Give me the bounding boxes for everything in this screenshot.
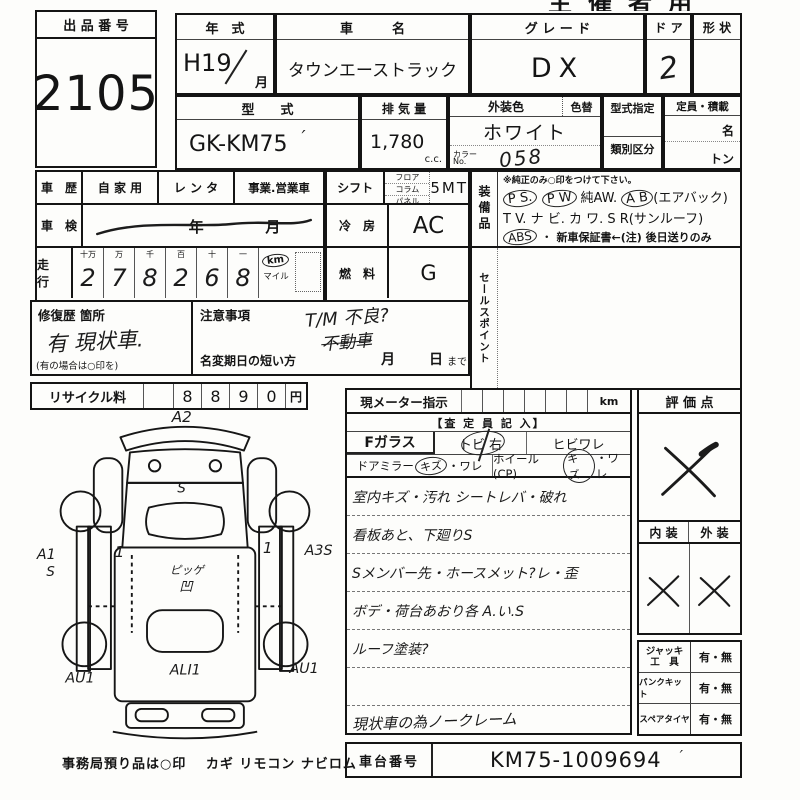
car-name-value: タウンエーストラック: [277, 40, 468, 96]
displacement-label: 排 気 量: [362, 97, 446, 120]
mirror-kizu-circle: キズ: [414, 455, 448, 476]
meter-cell: [567, 390, 588, 412]
exterior-color-box: 外装色 色替 ホワイト カラー No. 058: [448, 95, 602, 170]
mileage-d5: 6: [197, 261, 227, 294]
evaluation-x-mark: [654, 423, 726, 511]
caution-day-unit: 日: [429, 349, 443, 369]
sales-point-label: セールスポイント: [472, 248, 498, 388]
model-code-value: GK-KM75: [189, 132, 288, 157]
diagram-note-hood-s: S: [177, 481, 186, 496]
history-rental: レ ン タ: [159, 172, 235, 203]
jack-tools-label: ジャッキ 工 具: [639, 642, 691, 672]
left-tail-light: [136, 709, 168, 721]
car-top-view-diagram: A2 S 1 1 A1 S A3S ピッゲ 凹 AU1 ALI1 AU1: [25, 405, 345, 745]
displacement-value: 1,780: [370, 131, 424, 153]
repair-label: 修復歴 箇所: [32, 302, 191, 324]
top-cut-text-clip: 主催者用: [548, 0, 758, 11]
chassis-number-value: KM75-1009694: [490, 748, 662, 772]
top-cut-text: 主催者用: [548, 0, 708, 11]
front-bumper-outline: [120, 427, 249, 451]
evaluation-exterior-label: 外 装: [689, 522, 740, 542]
grade-box: グ レ ー ド DX: [470, 13, 645, 95]
year-month-suffix: 月: [255, 72, 268, 91]
repair-box: 修復歴 箇所 有 現状車. (有の場合は○印を): [30, 300, 193, 376]
mileage-mile-unit: マイル: [259, 270, 293, 282]
diagram-note-door-left: 1: [115, 543, 125, 561]
equipment-abs: ABS: [502, 227, 537, 246]
shift-value: 5MT: [430, 172, 468, 203]
tools-box: ジャッキ 工 具 有・無 パンクキット 有・無 スペアタイヤ 有・無: [637, 640, 742, 736]
equipment-label: 装備品: [472, 172, 498, 246]
history-label: 車 歴: [37, 172, 83, 203]
puncture-kit-value: 有・無: [691, 673, 740, 703]
evaluation-score-area: [639, 414, 740, 522]
caution-handwriting-2: 不動車: [320, 326, 373, 355]
shift-floor: フロア: [385, 172, 429, 184]
auction-number-value: 2105: [37, 39, 155, 149]
rear-panel: [126, 703, 244, 728]
capacity-label: 定員・積載: [665, 97, 740, 116]
sales-point-box: セールスポイント: [470, 246, 742, 390]
assessor-note-4: ボデ・荷台あおり各 A.い.S: [347, 592, 630, 630]
left-rear-wheel: [62, 622, 106, 666]
car-name-box: 車 名 タウンエーストラック: [275, 13, 470, 95]
cab-rear-window: [146, 503, 224, 539]
meter-label: 現メーター指示: [347, 390, 461, 412]
diagram-note-bed-1: ピッゲ: [170, 563, 206, 577]
rear-bumper: [113, 732, 257, 739]
door-value: 2: [643, 37, 693, 98]
mileage-h4: 百: [166, 248, 196, 261]
mileage-d1: 2: [73, 261, 103, 294]
puncture-kit-label: パンクキット: [639, 673, 691, 703]
equipment-aw: 純AW.: [580, 191, 617, 206]
exterior-color-value: ホワイト: [450, 117, 600, 145]
assessor-note-3: Sメンバー先・ホースメット?レ・歪: [347, 554, 630, 592]
fuel-label: 燃 料: [327, 248, 389, 298]
meter-cell: [461, 390, 483, 412]
equipment-kawa: カ ワ.: [569, 212, 603, 227]
interior-x-mark: [643, 559, 685, 619]
meter-cell: [504, 390, 525, 412]
equipment-dot: ・: [541, 230, 553, 244]
bed-rear-window: [147, 610, 223, 652]
drivetrain-table: シフト フロア コラム パネル 5MT 冷 房 AC 燃 料 G: [325, 170, 470, 302]
cooling-label: 冷 房: [327, 205, 389, 246]
type-designation-label: 型式指定: [604, 97, 661, 137]
equipment-tv: T V.: [503, 212, 526, 227]
door-label: ド ア: [647, 15, 690, 40]
diagram-note-door-right: 1: [263, 539, 273, 557]
auction-number-box: 出 品 番 号 2105: [35, 10, 157, 168]
year-box: 年 式 H19 月: [175, 13, 275, 95]
mileage-d2: 7: [104, 261, 134, 294]
history-private: 自 家 用: [83, 172, 159, 203]
equipment-ab-paren: (エアバック): [653, 191, 728, 206]
wheel-ware: ・ワレ: [596, 450, 630, 482]
grade-label: グ レ ー ド: [472, 15, 643, 40]
history-table: 車 歴 自 家 用 レ ン タ 事業.営業車 車 検 年 月 走 行 十万2 万…: [35, 170, 325, 302]
history-business: 事業.営業車: [235, 172, 323, 203]
type-designation-box: 型式指定 類別区分: [602, 95, 663, 170]
spare-tire-label: スペアタイヤ: [639, 704, 691, 734]
equipment-warranty: 新車保証書←(注) 後日送りのみ: [557, 231, 712, 244]
mileage-empty-cell: [295, 252, 321, 292]
diagram-note-rear-left: AU1: [64, 670, 94, 686]
capacity-box: 定員・積載 名 トン: [663, 95, 742, 170]
diagram-note-rear-right: AU1: [288, 661, 318, 677]
mileage-km-unit: km: [262, 253, 290, 269]
shaken-label: 車 検: [37, 205, 83, 246]
interior-score-area: [639, 544, 690, 633]
fuel-value: G: [389, 248, 468, 298]
year-label: 年 式: [177, 15, 273, 40]
equipment-note: ※純正のみ○印をつけて下さい。: [503, 173, 735, 186]
shape-label: 形 状: [694, 15, 740, 40]
equipment-pw: P W: [541, 188, 577, 209]
assessor-note-5: ルーフ塗装?: [347, 630, 630, 668]
class-division-label: 類別区分: [604, 137, 661, 174]
auction-sheet: 主催者用 出 品 番 号 2105 年 式 H19 月 車 名 タウンエーストラ…: [0, 0, 800, 800]
shaken-strike-mark: [83, 205, 323, 246]
diagram-note-a3s: A3S: [304, 543, 333, 559]
exterior-color-label: 外装色: [450, 97, 562, 116]
caution-box: 注意事項 T/M 不良? 不動車 名変期日の短い方 月 日 まで: [191, 300, 470, 376]
evaluation-box: 評 価 点 内 装 外 装: [637, 388, 742, 635]
assessor-note-2: 看板あと、下廻りS: [347, 516, 630, 554]
assessor-note-empty: [347, 668, 630, 706]
color-change-label: 色替: [562, 97, 600, 116]
chassis-number-label: 車台番号: [347, 744, 433, 776]
car-name-label: 車 名: [277, 15, 468, 40]
meter-cell: [483, 390, 504, 412]
office-note: 事務局預り品は○印 カギ リモコン ナビロム: [62, 753, 357, 772]
diagram-note-a1s: S: [46, 565, 55, 580]
equipment-ab: A B: [620, 188, 654, 208]
diagram-note-a2: A2: [171, 408, 192, 426]
diagram-note-bed-2: 凹: [179, 580, 194, 595]
repair-value: 有 現状車.: [31, 321, 191, 359]
evaluation-label: 評 価 点: [639, 390, 740, 414]
sales-point-content: [498, 248, 740, 388]
equipment-navi: ナ ビ.: [531, 212, 565, 227]
assessor-wheel: ホイール(CP) キズ ・ワレ: [493, 455, 630, 476]
shift-label: シフト: [327, 172, 385, 203]
assessor-f-glass: Fガラス: [347, 432, 435, 454]
displacement-unit: c.c.: [425, 154, 442, 165]
diagram-note-rear-center: ALI1: [169, 663, 201, 679]
meter-cell: [546, 390, 567, 412]
model-code-box: 型 式 GK-KM75 ′: [175, 95, 360, 170]
caution-rename-label: 名変期日の短い方: [200, 352, 296, 369]
assessor-bottom-note: 現状車の為ノークレーム: [347, 701, 631, 737]
meter-cell: [525, 390, 546, 412]
windshield-outline: [127, 449, 243, 483]
meter-unit: km: [588, 390, 630, 412]
caution-month-unit: 月: [381, 349, 395, 369]
mileage-h2: 万: [104, 248, 134, 261]
mileage-d3: 8: [135, 261, 165, 294]
mileage-label: 走 行: [37, 248, 73, 298]
shape-box: 形 状: [692, 13, 742, 95]
spare-tire-value: 有・無: [691, 704, 740, 734]
door-box: ド ア 2: [645, 13, 692, 95]
mileage-h6: 一: [228, 248, 258, 261]
year-value: H19: [183, 49, 232, 77]
jack-tools-value: 有・無: [691, 642, 740, 672]
right-rear-wheel: [264, 622, 308, 666]
inspector-box: 現メーター指示 km 【査 定 員 記 入】 Fガラス トビ 右 ヒビワレ ドア…: [345, 388, 632, 735]
auction-number-label: 出 品 番 号: [37, 12, 155, 39]
grade-value: DX: [472, 40, 643, 96]
mileage-h3: 千: [135, 248, 165, 261]
chassis-number-tick: ′: [680, 747, 683, 765]
equipment-ps: P S.: [502, 188, 538, 208]
assessor-note-1: 室内キズ・汚れ シートレバ・破れ: [347, 478, 630, 516]
color-no-label2: No.: [453, 158, 477, 165]
displacement-box: 排 気 量 1,780 c.c.: [360, 95, 448, 170]
mileage-h5: 十: [197, 248, 227, 261]
capacity-persons-unit: 名: [665, 116, 740, 142]
left-side-gate: [88, 527, 111, 669]
model-code-tick: ′: [302, 127, 306, 148]
mileage-d6: 8: [228, 261, 258, 294]
chassis-number-box: 車台番号 KM75-1009694 ′: [345, 742, 742, 778]
color-no-value: 058: [498, 143, 544, 171]
diagram-note-a1: A1: [36, 547, 56, 563]
exterior-score-area: [690, 544, 740, 633]
caution-label: 注意事項: [200, 305, 250, 324]
equipment-box: 装備品 ※純正のみ○印をつけて下さい。 P S. P W 純AW. A B(エア…: [470, 170, 742, 248]
equipment-sr: S R(サンルーフ): [607, 212, 703, 227]
right-tail-light: [202, 709, 234, 721]
mileage-h1: 十万: [73, 248, 103, 261]
cooling-value: AC: [389, 205, 468, 246]
mileage-d4: 2: [166, 261, 196, 294]
exterior-x-mark: [694, 559, 736, 619]
caution-made-label: まで: [447, 353, 467, 368]
model-code-label: 型 式: [177, 97, 358, 120]
assessor-tobi: トビ 右: [435, 432, 527, 454]
evaluation-interior-label: 内 装: [639, 522, 689, 542]
capacity-tons-unit: トン: [665, 142, 740, 168]
assessor-door-mirror: ドアミラー キズ ・ワレ: [347, 455, 493, 476]
shift-column: コラム: [385, 184, 429, 196]
